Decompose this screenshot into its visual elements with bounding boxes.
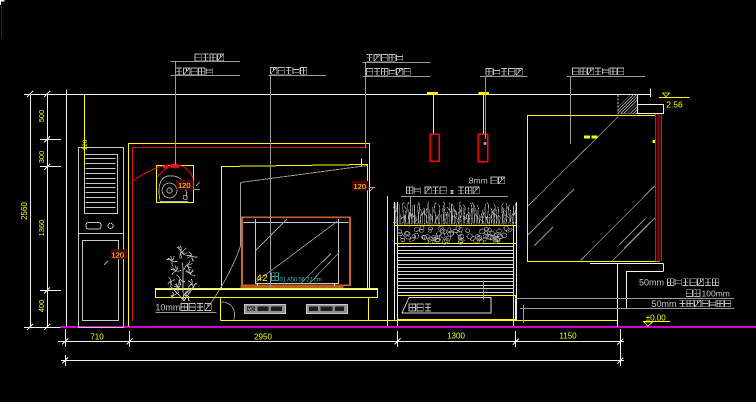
svg-text:300: 300: [37, 151, 46, 164]
svg-text:MD: MD: [248, 306, 256, 311]
svg-text:120: 120: [112, 251, 125, 260]
svg-text:710: 710: [90, 333, 104, 342]
svg-text:100mm: 100mm: [702, 288, 730, 298]
svg-text:50mm: 50mm: [639, 278, 664, 288]
svg-text:120: 120: [178, 181, 191, 190]
svg-text:120: 120: [354, 182, 367, 191]
svg-text:500: 500: [37, 110, 46, 123]
svg-text:120: 120: [82, 139, 89, 150]
svg-text:2.56: 2.56: [666, 99, 683, 109]
svg-text:400: 400: [37, 300, 46, 313]
svg-text:01 A50 56 27 cm: 01 A50 56 27 cm: [280, 276, 322, 283]
svg-text:8mm: 8mm: [469, 176, 488, 186]
svg-text:1150: 1150: [559, 332, 577, 341]
svg-text:1360: 1360: [37, 220, 46, 237]
svg-text:50mm: 50mm: [652, 299, 677, 309]
svg-text:1300: 1300: [447, 332, 465, 341]
svg-text:42: 42: [257, 273, 269, 284]
svg-text:10mm: 10mm: [155, 303, 180, 313]
svg-text:2950: 2950: [254, 333, 272, 342]
svg-text:2560: 2560: [20, 202, 29, 220]
